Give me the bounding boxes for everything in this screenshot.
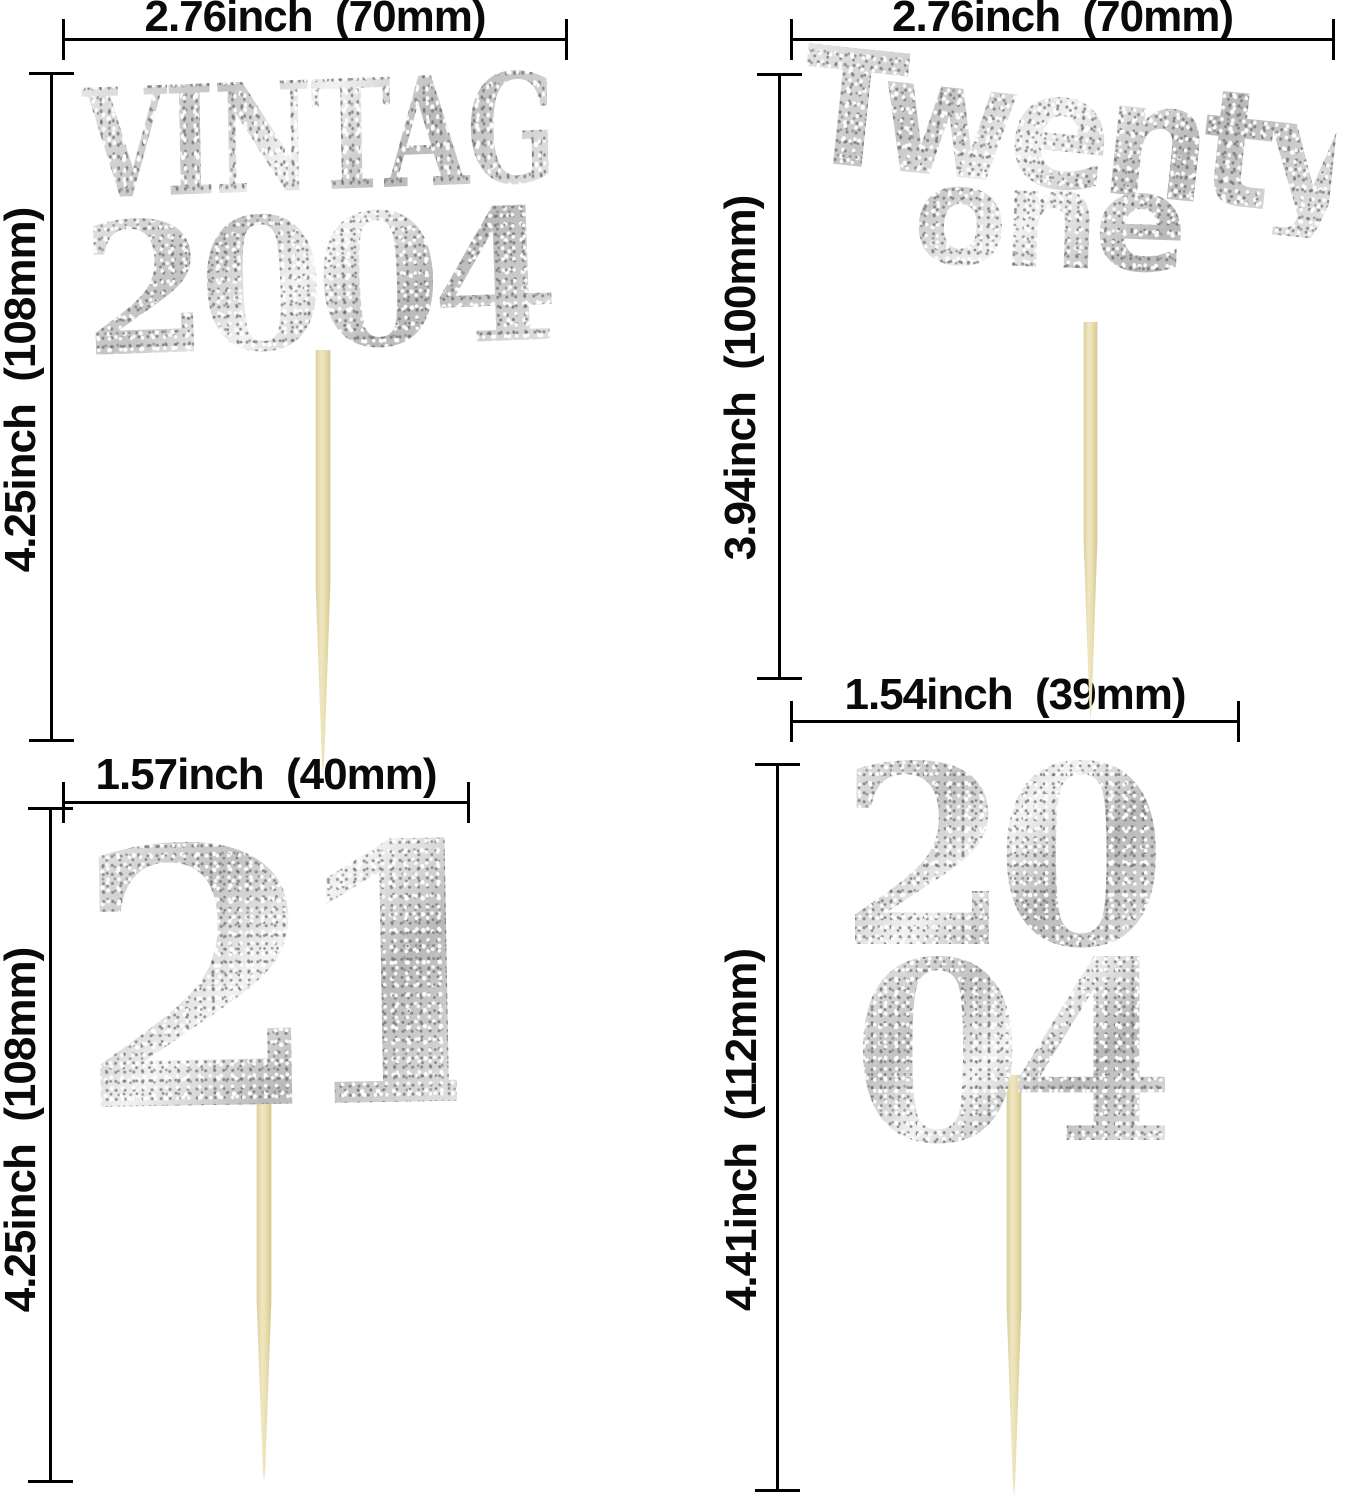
- toothpick: [315, 350, 331, 775]
- topper-text-line: 21: [72, 827, 457, 1134]
- topper-vintage-2004: VINTAGE 2004: [62, 78, 568, 358]
- topper-2004-stacked: 20 04: [825, 760, 1165, 1152]
- topper-text-line: 2004: [60, 199, 571, 367]
- height-dimension-line: [776, 763, 779, 1492]
- product-dimension-diagram: 2.76inch (70mm) 4.25inch (108mm) VINTAGE…: [0, 0, 1347, 1500]
- toothpick: [1083, 322, 1098, 720]
- height-dimension-label: 4.25inch (108mm): [0, 140, 44, 640]
- height-dimension-line: [50, 72, 53, 742]
- topper-21: 21: [75, 830, 455, 1130]
- height-dimension-label: 3.94inch (100mm): [718, 128, 764, 628]
- topper-twenty-one: Twenty one: [800, 58, 1335, 280]
- height-dimension-label: 4.25inch (108mm): [0, 880, 44, 1380]
- topper-text-line: one: [758, 150, 1337, 290]
- height-dimension-line: [49, 807, 52, 1483]
- width-dimension-label: 2.76inch (70mm): [62, 0, 568, 40]
- height-dimension-label: 4.41inch (112mm): [719, 880, 765, 1380]
- topper-text-line: 04: [851, 956, 1165, 1152]
